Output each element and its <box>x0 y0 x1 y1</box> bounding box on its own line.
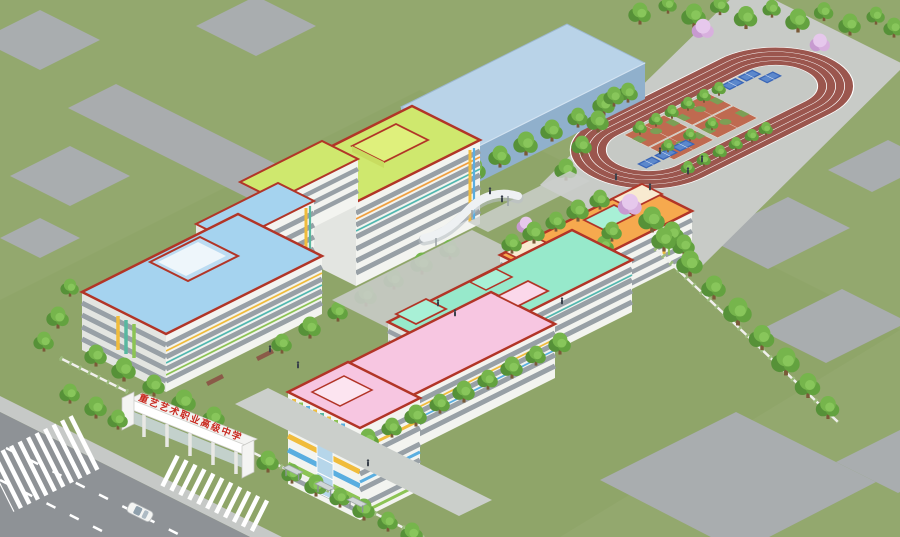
campus-scene: 重艺艺术职业高级中学 <box>0 0 900 537</box>
pedestrian <box>649 183 651 190</box>
pedestrian <box>269 345 271 352</box>
campus-aerial-render: 重艺艺术职业高级中学 <box>0 0 900 537</box>
pedestrian <box>489 187 491 194</box>
pedestrian <box>659 147 661 154</box>
pedestrian <box>454 309 456 316</box>
pedestrian <box>367 459 369 466</box>
pedestrian <box>687 167 689 174</box>
pedestrian <box>701 155 703 162</box>
pedestrian <box>297 361 299 368</box>
gate-pier <box>242 440 254 478</box>
pedestrian <box>561 297 563 304</box>
pedestrian <box>437 299 439 306</box>
pedestrian <box>501 195 503 202</box>
pedestrian <box>615 173 617 180</box>
